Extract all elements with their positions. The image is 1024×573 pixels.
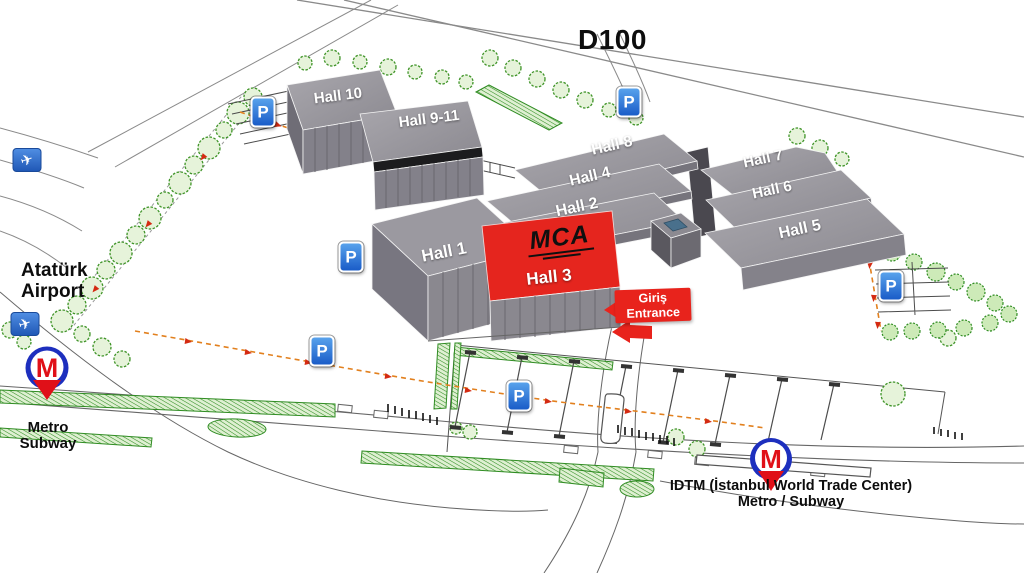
parking-icon-central: P: [507, 381, 532, 412]
idtm-metro-label: IDTM (İstanbul World Trade Center) Metro…: [638, 479, 944, 511]
parking-icon-hall10: P: [251, 97, 276, 128]
parking-icon-hall1: P: [339, 242, 364, 273]
metro-subway-label: Metro Subway: [6, 420, 90, 452]
parking-icon-east: P: [879, 271, 904, 302]
parking-icon-southwest: P: [310, 336, 335, 367]
hall-3-label: Hall 3: [526, 266, 573, 288]
svg-text:M: M: [36, 353, 59, 383]
highway-d100-label: D100: [578, 24, 647, 56]
parking-icon-hall8: P: [617, 87, 642, 118]
site-map: M M D100 Atatürk Airport Metro Subway ID…: [0, 0, 1024, 573]
airplane-icon-top: ✈: [13, 148, 42, 172]
svg-text:M: M: [760, 444, 782, 474]
airplane-icon-airport: ✈: [11, 312, 40, 336]
entrance-sign: Giriş Entrance: [614, 288, 691, 324]
ataturk-airport-label: Atatürk Airport: [21, 261, 88, 302]
